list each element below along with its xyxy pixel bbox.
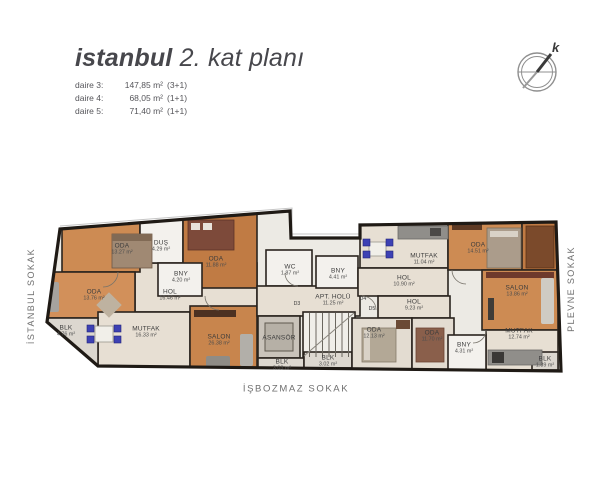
credenza-icon	[486, 272, 554, 278]
title-block: istanbul 2. kat planı daire 3: 147,85 m²…	[75, 44, 304, 119]
elevator-icon	[265, 323, 293, 351]
sofa-icon	[541, 278, 554, 324]
sofa-icon	[240, 334, 253, 366]
kitchen-table-icon	[369, 242, 386, 256]
street-label-left: İSTANBUL SOKAK	[26, 248, 36, 344]
wardrobe-icon	[396, 320, 410, 329]
apartment-label: daire 4:	[75, 92, 111, 105]
legend-row: daire 5: 71,40 m² (1+1)	[75, 105, 304, 118]
apartment-area: 71,40 m²	[111, 105, 163, 118]
apartment-legend: daire 3: 147,85 m² (3+1) daire 4: 68,05 …	[75, 79, 304, 119]
apartment-area: 147,85 m²	[111, 79, 163, 92]
apartment-label: daire 3:	[75, 79, 111, 92]
apartment-type: (1+1)	[167, 92, 187, 105]
apartment-area: 68,05 m²	[111, 92, 163, 105]
rooms-floors	[40, 200, 570, 380]
wardrobe-icon	[526, 226, 554, 268]
armchair-icon	[206, 356, 230, 367]
oven-icon	[492, 352, 504, 363]
legend-row: daire 4: 68,05 m² (1+1)	[75, 92, 304, 105]
legend-row: daire 3: 147,85 m² (3+1)	[75, 79, 304, 92]
kitchen-table-icon	[95, 326, 113, 342]
credenza-icon	[194, 310, 236, 317]
tv-unit-icon	[488, 298, 494, 320]
bed-icon	[112, 234, 152, 241]
street-label-bottom: İŞBOZMAZ SOKAK	[243, 384, 349, 395]
north-label: k	[552, 40, 560, 55]
plan-name: 2. kat planı	[172, 44, 304, 72]
compass-icon: k	[505, 38, 575, 100]
sink-icon	[430, 228, 441, 236]
brand-name: istanbul	[75, 44, 172, 72]
apartment-label: daire 5:	[75, 105, 111, 118]
apartment-type: (1+1)	[167, 105, 187, 118]
bed-icon	[416, 328, 444, 362]
apartment-type: (3+1)	[167, 79, 187, 92]
street-label-right: PLEVNE SOKAK	[566, 246, 576, 332]
page-title: istanbul 2. kat planı	[75, 44, 304, 73]
